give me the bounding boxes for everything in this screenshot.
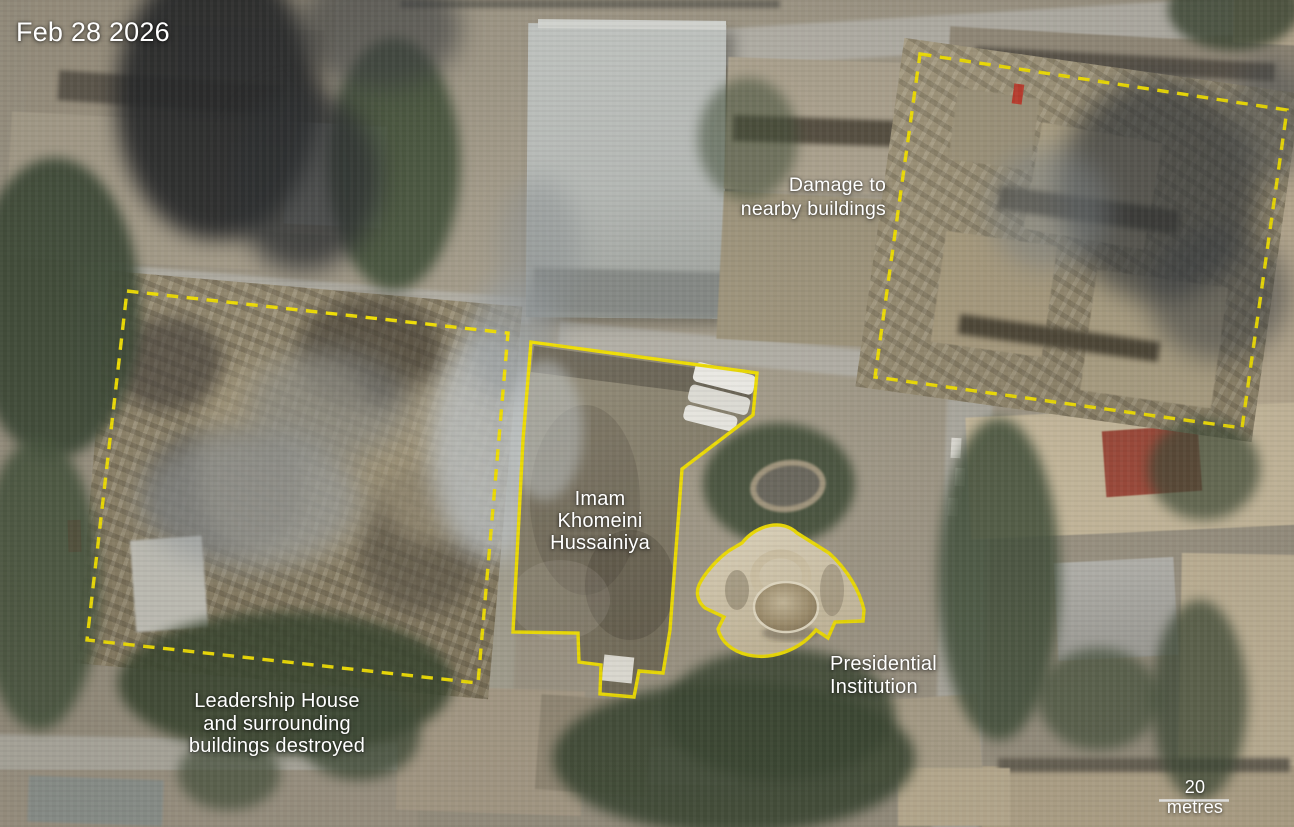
date-label: Feb 28 2026 <box>16 16 170 48</box>
small-white-roof <box>602 655 635 684</box>
annotation-outline-damage-nearby <box>875 54 1287 428</box>
satellite-image: Feb 28 2026 Damage to nearby buildings I… <box>0 0 1294 827</box>
annotation-outline-leadership-house <box>87 291 508 683</box>
annotation-label-leadership-house: Leadership House and surrounding buildin… <box>157 690 397 758</box>
annotation-label-hussainiya: Imam Khomeini Hussainiya <box>540 488 660 554</box>
annotation-label-damage-nearby: Damage to nearby buildings <box>741 173 886 221</box>
scale-bar-label: 20 metres <box>1159 777 1231 817</box>
dome <box>754 582 818 632</box>
annotation-label-presidential: Presidential Institution <box>830 653 937 699</box>
